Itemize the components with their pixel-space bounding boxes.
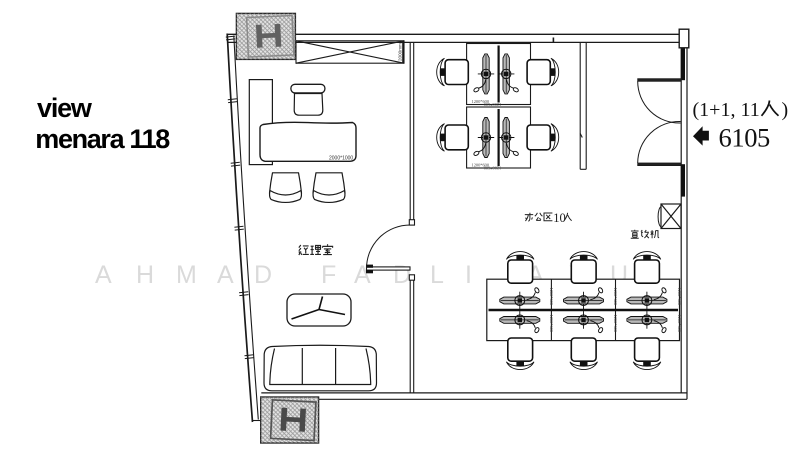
svg-text:1200*600: 1200*600 (483, 166, 501, 171)
svg-text:1200*600: 1200*600 (613, 315, 618, 333)
svg-text:1200*600: 1200*600 (549, 288, 554, 306)
svg-text:view: view (37, 93, 93, 123)
svg-text:(1+1,: (1+1, (693, 99, 736, 121)
svg-text:1200*600: 1200*600 (677, 288, 682, 306)
svg-text:1200*600: 1200*600 (483, 102, 501, 107)
svg-text:1200*600: 1200*600 (613, 288, 618, 306)
svg-text:menara 118: menara 118 (35, 124, 170, 154)
svg-text:2000*1000: 2000*1000 (329, 156, 353, 162)
svg-text:10: 10 (553, 211, 566, 225)
svg-text:6105: 6105 (719, 123, 771, 153)
svg-text:1200*600: 1200*600 (677, 315, 682, 333)
svg-text:1200*600: 1200*600 (549, 315, 554, 333)
svg-text:11: 11 (741, 99, 760, 121)
svg-text:): ) (782, 99, 789, 121)
svg-text:2000mm: 2000mm (398, 43, 403, 61)
